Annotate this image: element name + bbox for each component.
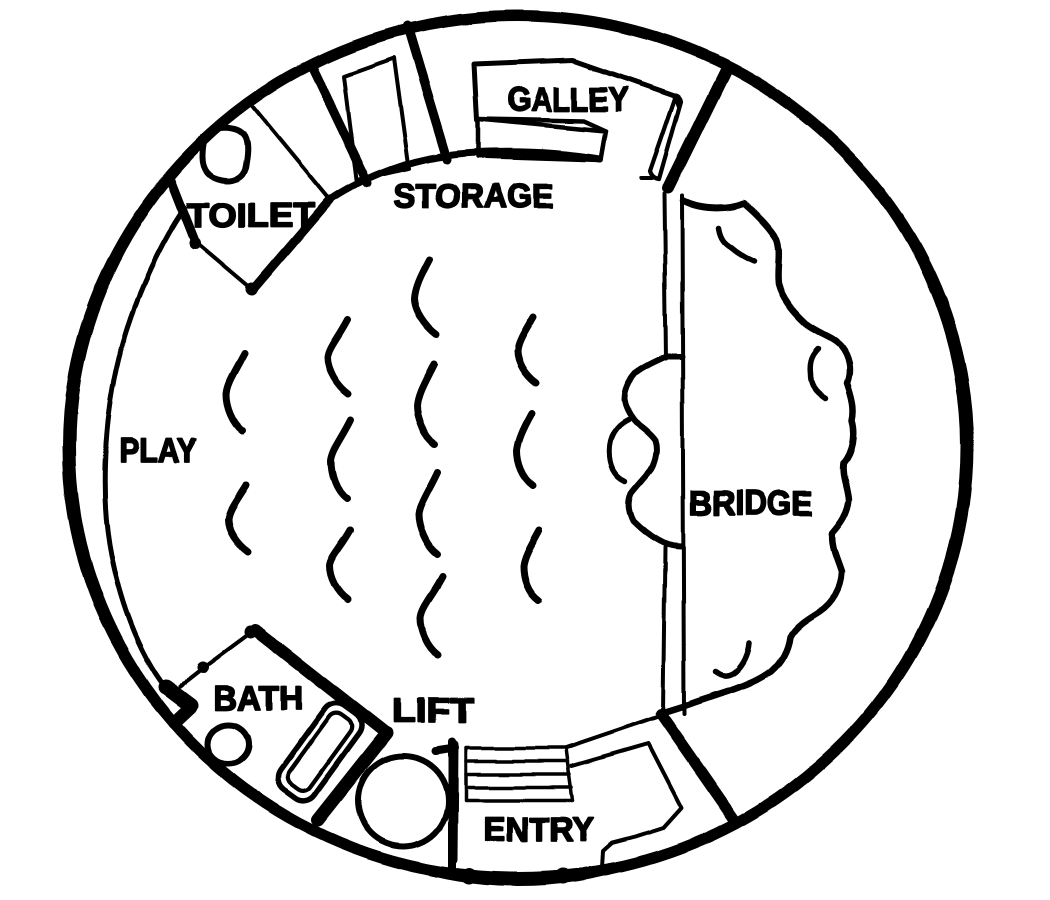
svg-text:STORAGE: STORAGE bbox=[394, 177, 554, 215]
svg-text:TOILET: TOILET bbox=[187, 197, 315, 235]
svg-text:PLAY: PLAY bbox=[119, 432, 197, 470]
svg-text:ENTRY: ENTRY bbox=[483, 811, 594, 849]
svg-text:BATH: BATH bbox=[213, 680, 303, 718]
svg-text:BRIDGE: BRIDGE bbox=[689, 485, 813, 523]
svg-text:LIFT: LIFT bbox=[392, 692, 474, 730]
svg-text:GALLEY: GALLEY bbox=[507, 81, 628, 119]
